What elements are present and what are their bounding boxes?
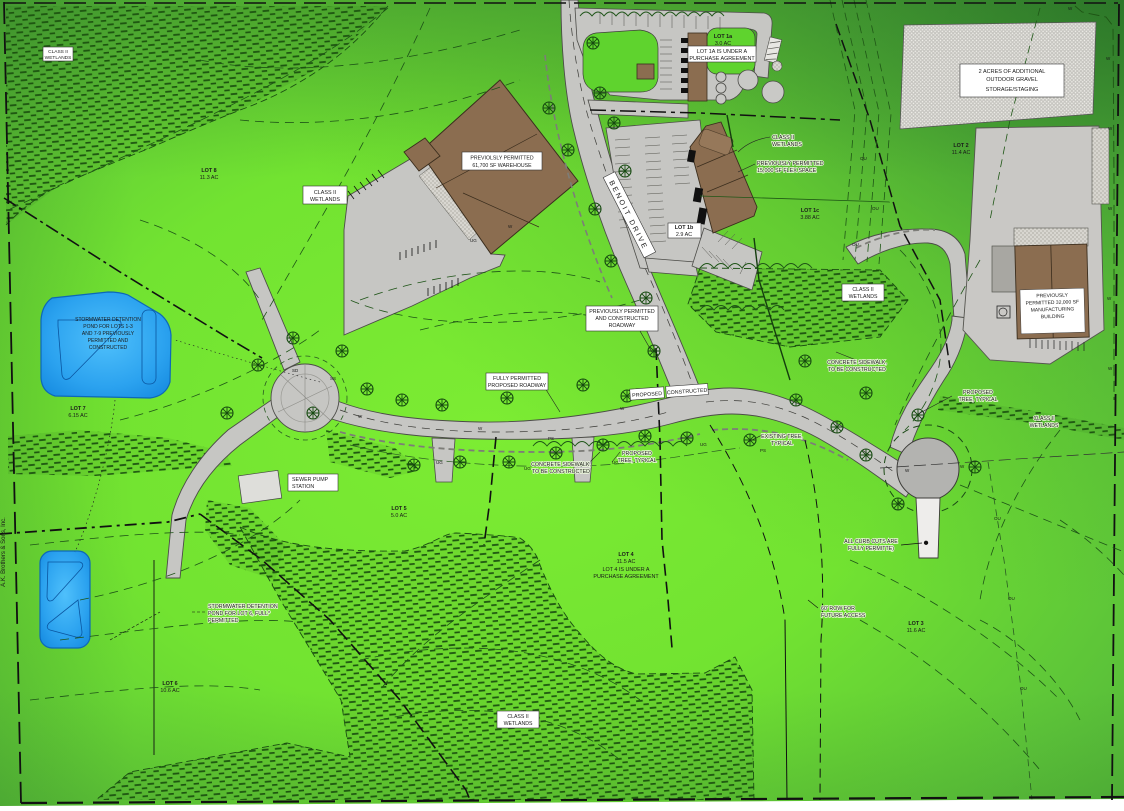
svg-text:WETLANDS: WETLANDS bbox=[45, 55, 72, 61]
svg-text:5.0 AC: 5.0 AC bbox=[391, 513, 407, 519]
svg-text:STORAGE/STAGING: STORAGE/STAGING bbox=[986, 87, 1039, 93]
svg-text:PREVIOUSLY PERMITTED: PREVIOUSLY PERMITTED bbox=[589, 309, 655, 315]
svg-text:LOT 3: LOT 3 bbox=[908, 621, 923, 627]
svg-text:6.15 AC: 6.15 AC bbox=[68, 413, 87, 419]
svg-text:PERMITTED: PERMITTED bbox=[208, 618, 239, 624]
svg-text:ALL CURB CUTS ARE: ALL CURB CUTS ARE bbox=[844, 539, 898, 545]
svg-text:PREVIOLSLY PERMITTED: PREVIOLSLY PERMITTED bbox=[470, 156, 533, 162]
svg-text:PROPOSED ROADWAY: PROPOSED ROADWAY bbox=[488, 383, 547, 389]
svg-text:PERMITTED AND: PERMITTED AND bbox=[88, 338, 129, 344]
svg-text:TYPICAL: TYPICAL bbox=[771, 441, 793, 447]
svg-text:STORMWATER DETENTION: STORMWATER DETENTION bbox=[75, 317, 141, 323]
svg-text:WETLANDS: WETLANDS bbox=[1030, 423, 1059, 429]
svg-text:PS: PS bbox=[548, 436, 554, 441]
svg-text:10.6 AC: 10.6 AC bbox=[160, 688, 179, 694]
svg-text:LOT 2: LOT 2 bbox=[953, 143, 968, 149]
svg-text:11.5 AC: 11.5 AC bbox=[617, 559, 636, 565]
svg-text:CLASS II: CLASS II bbox=[314, 190, 336, 196]
svg-text:FULLY PERMITTE): FULLY PERMITTE) bbox=[848, 546, 894, 552]
svg-text:CONCRETE SIDEWALK,: CONCRETE SIDEWALK, bbox=[531, 462, 591, 468]
svg-text:3.88 AC: 3.88 AC bbox=[800, 215, 819, 221]
svg-text:FUTURE ACCESS: FUTURE ACCESS bbox=[821, 613, 866, 619]
svg-text:POND FOR LOT 6, FULL*: POND FOR LOT 6, FULL* bbox=[208, 611, 270, 617]
svg-text:LOT 1a: LOT 1a bbox=[714, 34, 733, 40]
svg-text:PS: PS bbox=[760, 448, 766, 453]
svg-text:A.K. Brothers & Sons, Inc.: A.K. Brothers & Sons, Inc. bbox=[1, 517, 7, 587]
svg-text:PREVIOUSLY: PREVIOUSLY bbox=[1036, 293, 1068, 300]
svg-text:LOT 1c: LOT 1c bbox=[801, 208, 819, 214]
svg-text:61,700 SF WAREHOUSE: 61,700 SF WAREHOUSE bbox=[472, 163, 532, 169]
svg-text:OUTDOOR GRAVEL: OUTDOOR GRAVEL bbox=[986, 77, 1038, 83]
svg-text:CLASS II: CLASS II bbox=[772, 135, 794, 141]
svg-text:11.6 AC: 11.6 AC bbox=[907, 628, 926, 634]
svg-text:UG: UG bbox=[470, 238, 477, 243]
svg-text:11.4 AC: 11.4 AC bbox=[952, 150, 971, 156]
svg-text:LOT 4: LOT 4 bbox=[618, 552, 633, 558]
svg-text:CONSTRUCTED: CONSTRUCTED bbox=[89, 345, 128, 351]
svg-text:OU: OU bbox=[994, 516, 1001, 521]
svg-text:POND FOR LOTS 1-3: POND FOR LOTS 1-3 bbox=[83, 324, 133, 330]
svg-text:BUILDING: BUILDING bbox=[1041, 314, 1065, 321]
svg-text:UG: UG bbox=[700, 442, 707, 447]
svg-text:ROADWAY: ROADWAY bbox=[609, 323, 636, 329]
svg-text:SD: SD bbox=[292, 368, 299, 373]
svg-text:11.3 AC: 11.3 AC bbox=[200, 175, 219, 181]
svg-text:OU: OU bbox=[1020, 686, 1027, 691]
svg-text:OU: OU bbox=[852, 242, 859, 247]
svg-text:LOT 1b: LOT 1b bbox=[675, 225, 694, 231]
svg-text:STORMWATER DETENTION: STORMWATER DETENTION bbox=[208, 604, 278, 610]
svg-text:2 ACRES OF ADDITIONAL: 2 ACRES OF ADDITIONAL bbox=[979, 69, 1046, 75]
svg-text:TREE, TYPICAL: TREE, TYPICAL bbox=[617, 458, 656, 464]
svg-text:WETLANDS: WETLANDS bbox=[504, 721, 533, 727]
svg-text:LOT 1A IS UNDER A: LOT 1A IS UNDER A bbox=[697, 49, 748, 55]
svg-text:CLASS II: CLASS II bbox=[507, 714, 528, 720]
svg-text:OU: OU bbox=[872, 206, 879, 211]
svg-text:WETLANDS: WETLANDS bbox=[310, 197, 340, 203]
svg-text:PROPOSED: PROPOSED bbox=[963, 390, 993, 396]
svg-text:LOT 8: LOT 8 bbox=[201, 168, 216, 174]
svg-text:2.9 AC: 2.9 AC bbox=[676, 232, 692, 238]
svg-text:MANUFACTURING: MANUFACTURING bbox=[1031, 306, 1075, 313]
svg-text:60' ROW FOR: 60' ROW FOR bbox=[821, 606, 855, 612]
svg-text:LOT 6: LOT 6 bbox=[162, 681, 177, 687]
svg-text:PROPOSED: PROPOSED bbox=[622, 451, 652, 457]
svg-text:OU: OU bbox=[1008, 596, 1015, 601]
svg-text:CLASS II: CLASS II bbox=[48, 49, 68, 55]
svg-text:SEWER PUMP: SEWER PUMP bbox=[292, 477, 329, 483]
svg-text:LOT 5: LOT 5 bbox=[391, 506, 406, 512]
svg-text:LOT 7: LOT 7 bbox=[70, 406, 85, 412]
svg-text:TO BE CONSTRUCTED: TO BE CONSTRUCTED bbox=[828, 367, 886, 373]
svg-text:CLASS II: CLASS II bbox=[852, 287, 873, 293]
svg-text:CONCRETE SIDEWALK,: CONCRETE SIDEWALK, bbox=[827, 360, 887, 366]
svg-text:15,000 SF FLEX SPACE: 15,000 SF FLEX SPACE bbox=[757, 168, 817, 174]
svg-text:SS: SS bbox=[330, 376, 336, 381]
svg-text:WETLANDS: WETLANDS bbox=[772, 142, 802, 148]
svg-text:EXISTING TREE,: EXISTING TREE, bbox=[761, 434, 803, 440]
svg-text:AND CONSTRUCTED: AND CONSTRUCTED bbox=[595, 316, 648, 322]
svg-text:STATION: STATION bbox=[292, 484, 314, 490]
svg-text:PREVIOUSLY PERMITTED: PREVIOUSLY PERMITTED bbox=[757, 161, 824, 167]
svg-text:AND 7-9 PREVIOUSLY: AND 7-9 PREVIOUSLY bbox=[82, 331, 135, 337]
svg-text:CLASS II: CLASS II bbox=[1033, 416, 1054, 422]
svg-text:PURCHASE AGREEMENT: PURCHASE AGREEMENT bbox=[593, 574, 659, 580]
svg-text:TO BE CONSTRUCTED: TO BE CONSTRUCTED bbox=[532, 469, 590, 475]
svg-text:LOT 4 IS UNDER A: LOT 4 IS UNDER A bbox=[603, 567, 650, 573]
svg-text:WETLANDS: WETLANDS bbox=[849, 294, 878, 300]
svg-text:UG: UG bbox=[436, 460, 443, 465]
svg-text:OU: OU bbox=[860, 156, 867, 161]
svg-text:PURCHASE AGREEMENT: PURCHASE AGREEMENT bbox=[689, 56, 755, 62]
svg-text:TREE, TYPICAL: TREE, TYPICAL bbox=[958, 397, 997, 403]
svg-text:FULLY PERMITTED: FULLY PERMITTED bbox=[493, 376, 541, 382]
